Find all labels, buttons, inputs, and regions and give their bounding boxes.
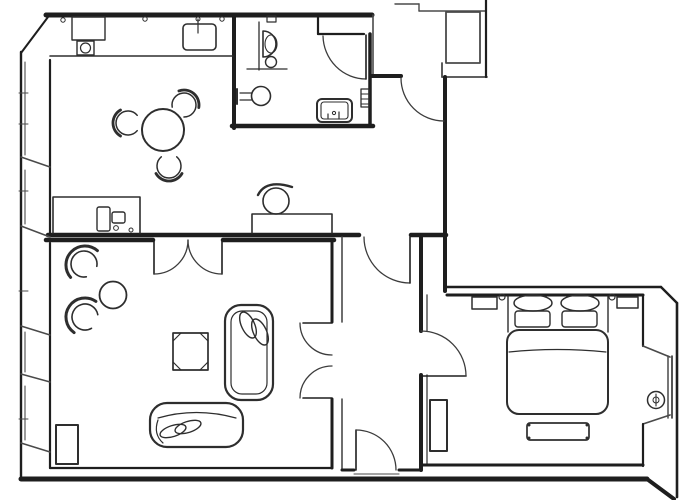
toilet-flush (266, 57, 277, 68)
desk-east (252, 214, 332, 233)
bath-sink-basin (321, 102, 348, 119)
desk-west-tower (97, 207, 110, 231)
bed-duvet (507, 330, 608, 414)
living-double-door-right-arc (188, 240, 222, 274)
floor-plan-svg (0, 0, 700, 500)
bed-duvet-fold (509, 350, 606, 353)
sofa-south-outer (150, 403, 243, 447)
bed-pillow-right (561, 295, 599, 311)
bathroom-door-arc (323, 36, 366, 79)
nightstand-left (472, 297, 497, 309)
group-bedroom (430, 294, 665, 451)
coffee-table-corner-3 (200, 362, 208, 370)
shower-head (252, 87, 271, 106)
coffee-table-corner-4 (173, 362, 181, 370)
bench-dot-3 (528, 437, 531, 440)
group-living-room (56, 246, 273, 464)
armchair-1-seat (71, 251, 97, 277)
desk-west-mouse (114, 226, 119, 231)
kitchen-cabinet (72, 17, 105, 40)
window-splay-1 (21, 157, 50, 167)
bed-bench (527, 423, 589, 440)
sofa-south-pillow-2 (173, 418, 202, 437)
sofa-south-pillow-1 (158, 422, 187, 441)
kitchen-cooktop-burner (81, 43, 91, 53)
dining-table (142, 109, 184, 151)
window-splay-4 (21, 374, 50, 382)
entrance-door-arc (356, 430, 396, 470)
stair-shaft (446, 12, 480, 63)
coffee-table (173, 333, 208, 370)
living-east-door-top-arc (300, 323, 332, 355)
dining-chair-left-seat (116, 111, 137, 135)
bed-blanket-right (562, 311, 597, 327)
bedroom-top-corner-diag (661, 287, 677, 303)
sofa-south-back-line (158, 413, 236, 419)
window-splay-5 (21, 443, 50, 452)
bed-pillow-left (514, 295, 552, 311)
coffee-table-corner-2 (200, 333, 208, 341)
dining-chair-bottom-seat (157, 157, 181, 178)
kitchen-sink (183, 24, 216, 50)
bench-dot-2 (586, 424, 589, 427)
bedroom-door-arc (421, 331, 466, 376)
living-radiator (56, 425, 78, 464)
nightstand-right (617, 297, 638, 308)
stair-entry-door-arc (401, 78, 444, 121)
floor-plan-image (0, 0, 700, 500)
living-double-door-left-arc (154, 240, 188, 274)
bench-dot-4 (586, 437, 589, 440)
bay-splay-top (643, 346, 670, 357)
living-east-door-bottom-arc (300, 366, 332, 398)
bench-dot-1 (528, 424, 531, 427)
desk-west-monitor (112, 212, 125, 223)
kitchen-knob-1 (61, 18, 65, 22)
hall-door-arc (364, 237, 410, 283)
side-table (100, 282, 127, 309)
bay-splay-bottom (643, 415, 670, 424)
coffee-table-corner-1 (173, 333, 181, 341)
bottom-outer-diag (647, 479, 674, 499)
desk-west-item (129, 228, 133, 232)
window-splay-2 (21, 226, 50, 237)
sofa-east-outer (225, 305, 273, 400)
armchair-2-back (66, 298, 96, 333)
bath-sink-drain (332, 111, 335, 114)
sofa-east-pillow-2 (248, 317, 272, 348)
top-left-corner-splay (21, 17, 48, 53)
bedroom-radiator (430, 400, 447, 451)
desk-chair-seat (263, 188, 289, 214)
armchair-2-seat (72, 304, 98, 330)
bed-blanket-left (515, 311, 550, 327)
sofa-east-pillow-1 (236, 310, 260, 341)
group-bathroom (237, 16, 369, 122)
